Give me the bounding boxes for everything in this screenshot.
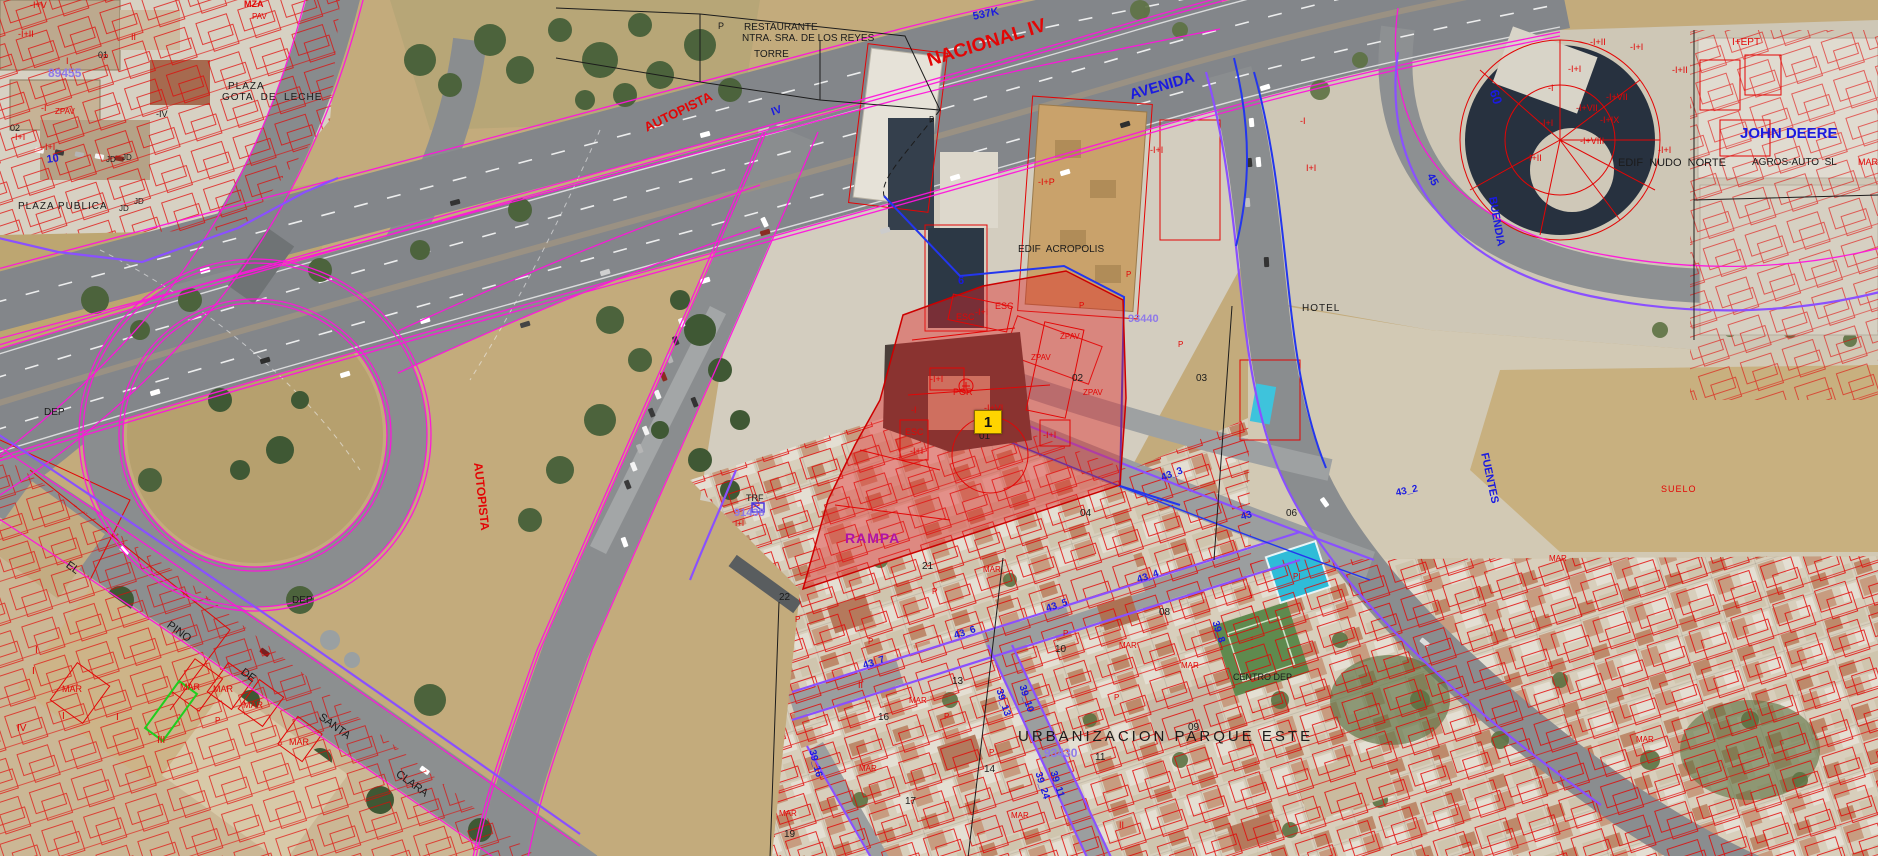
map-viewport[interactable]: PRESTAURANTENTRA. SRA. DE LOS REYESTORRE…: [0, 0, 1878, 856]
map-canvas[interactable]: [0, 0, 1878, 856]
parcel-marker[interactable]: 1: [974, 410, 1002, 434]
